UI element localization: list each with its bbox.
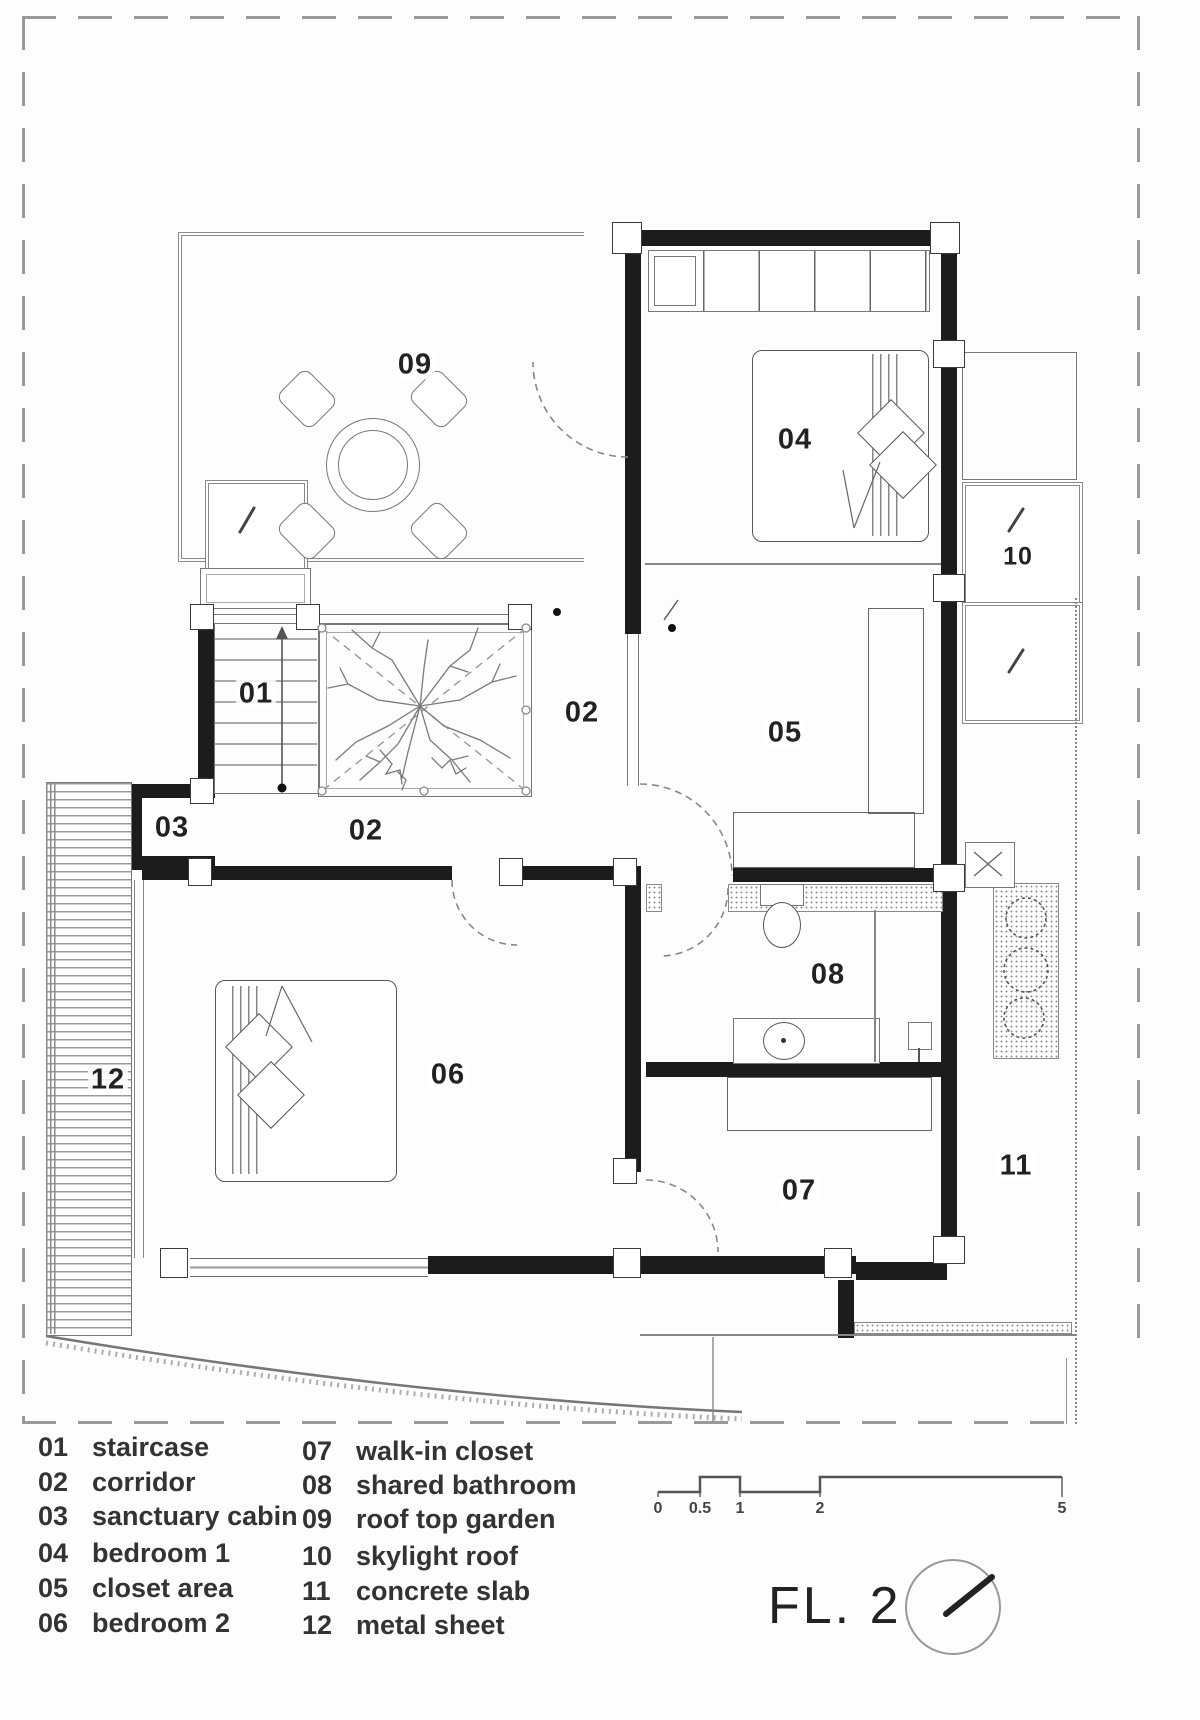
dimension-marks [553, 600, 678, 632]
legend-label: bedroom 1 [92, 1538, 230, 1568]
legend-num: 03 [38, 1503, 92, 1530]
legend-item: 02corridor [38, 1469, 196, 1496]
legend-num: 05 [38, 1575, 92, 1602]
legend-item: 09roof top garden [302, 1506, 555, 1533]
floor-plan-sheet: 09 04 10 01 02 05 02 03 08 12 06 11 07 0… [0, 0, 1200, 1720]
legend-item: 11concrete slab [302, 1578, 530, 1605]
legend-label: roof top garden [356, 1504, 555, 1534]
legend-item: 01staircase [38, 1434, 209, 1461]
legend-label: corridor [92, 1467, 196, 1497]
door-arcs [452, 362, 732, 1252]
legend-label: metal sheet [356, 1610, 505, 1640]
legend-item: 04bedroom 1 [38, 1540, 230, 1567]
legend-num: 07 [302, 1438, 356, 1465]
scale-tick: 0 [654, 1501, 663, 1517]
legend-num: 02 [38, 1469, 92, 1496]
room-label-12: 12 [88, 1066, 128, 1095]
legend-num: 01 [38, 1434, 92, 1461]
scale-tick: 0.5 [689, 1501, 711, 1517]
linework-overlay [0, 0, 1200, 1720]
legend-item: 10skylight roof [302, 1543, 518, 1570]
legend-num: 12 [302, 1612, 356, 1639]
scale-tick: 5 [1058, 1501, 1067, 1517]
legend-num: 11 [302, 1578, 356, 1605]
tree-icon [328, 628, 516, 790]
room-label-01: 01 [236, 680, 276, 709]
legend-num: 09 [302, 1506, 356, 1533]
room-label-10: 10 [1000, 545, 1036, 570]
legend-num: 04 [38, 1540, 92, 1567]
legend-num: 10 [302, 1543, 356, 1570]
curved-roof-edge [46, 1336, 742, 1422]
scale-tick: 1 [736, 1501, 745, 1517]
room-label-02-upper: 02 [562, 699, 602, 728]
legend-label: shared bathroom [356, 1470, 577, 1500]
legend-item: 03sanctuary cabin [38, 1503, 298, 1530]
planter-skylight-mark [974, 852, 1002, 876]
room-label-04: 04 [775, 426, 815, 455]
legend-num: 08 [302, 1472, 356, 1499]
legend-label: sanctuary cabin [92, 1501, 298, 1531]
room-label-09: 09 [395, 351, 435, 380]
legend-label: closet area [92, 1573, 233, 1603]
legend-item: 12metal sheet [302, 1612, 505, 1639]
room-label-06: 06 [428, 1061, 468, 1090]
legend-item: 08shared bathroom [302, 1472, 577, 1499]
legend-label: concrete slab [356, 1576, 530, 1606]
legend-label: bedroom 2 [92, 1608, 230, 1638]
legend-label: walk-in closet [356, 1436, 533, 1466]
legend-item: 07walk-in closet [302, 1438, 533, 1465]
legend-num: 06 [38, 1610, 92, 1637]
room-label-11: 11 [997, 1152, 1036, 1181]
legend-label: staircase [92, 1432, 209, 1462]
north-arrow-icon [906, 1560, 1000, 1654]
scale-tick: 2 [816, 1501, 825, 1517]
legend-item: 06bedroom 2 [38, 1610, 230, 1637]
room-label-08: 08 [808, 961, 848, 990]
legend-item: 05closet area [38, 1575, 233, 1602]
room-label-03: 03 [152, 814, 192, 843]
room-label-05: 05 [765, 719, 805, 748]
room-label-02-lower: 02 [346, 817, 386, 846]
stair-arrow [276, 626, 288, 793]
skylight-marks [240, 508, 1023, 672]
shrub-icons [1004, 898, 1048, 1038]
legend-label: skylight roof [356, 1541, 518, 1571]
floor-title: FL. 2 [768, 1580, 902, 1632]
bed-fold-lines [266, 462, 880, 1042]
scale-bar-icon [658, 1477, 1062, 1497]
room-label-07: 07 [779, 1177, 819, 1206]
